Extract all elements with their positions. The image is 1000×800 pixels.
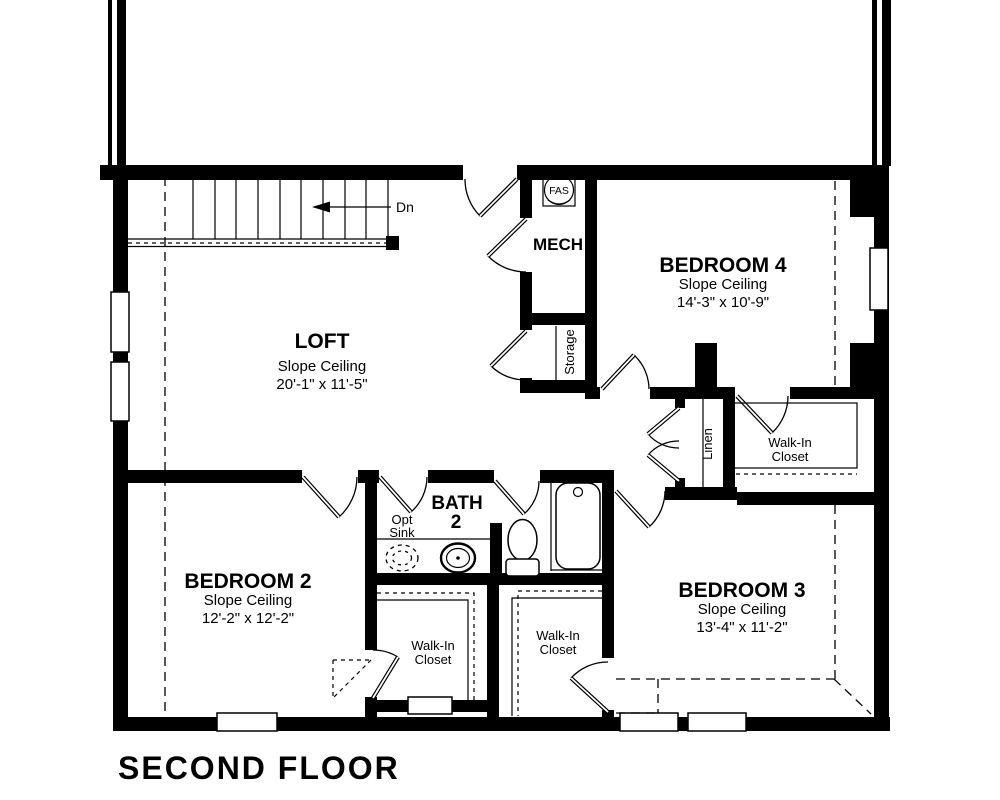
door-bedroom3 [616, 491, 665, 527]
windows [111, 248, 888, 731]
room-closet-bedroom3: Walk-In Closet [536, 628, 580, 657]
door-linen-double [648, 408, 679, 481]
bedroom2-dims: 12'-2" x 12'-2" [202, 610, 294, 627]
room-loft: LOFT Slope Ceiling 20'-1" x 11'-5" [276, 330, 367, 393]
closet-bedroom3-line2: Closet [540, 642, 577, 657]
closet-bedroom4-line2: Closet [772, 449, 809, 464]
room-bath2: BATH 2 Opt Sink [389, 493, 482, 540]
optional-sink [386, 545, 418, 571]
door-walkin-closet-bedroom3 [571, 662, 608, 712]
bedroom4-ceiling: Slope Ceiling [679, 276, 767, 293]
door-bath2 [380, 477, 427, 512]
door-mech [488, 219, 526, 272]
room-storage: Storage [562, 329, 577, 375]
bedroom2-ceiling: Slope Ceiling [204, 592, 292, 609]
door-loft-entry [465, 179, 517, 216]
storage-label: Storage [562, 329, 577, 375]
room-closet-bedroom4: Walk-In Closet [768, 435, 812, 464]
door-storage [491, 331, 526, 380]
closet-bedroom2-line1: Walk-In [411, 638, 455, 653]
bedroom3-ceiling: Slope Ceiling [698, 601, 786, 618]
bath2-name-line1: BATH [431, 493, 482, 514]
room-linen: Linen [700, 428, 715, 460]
door-toilet-compartment [495, 481, 539, 514]
room-bedroom4: BEDROOM 4 Slope Ceiling 14'-3" x 10'-9" [659, 254, 787, 311]
room-closet-bedroom2: Walk-In Closet [411, 638, 455, 667]
bath2-opt-line2: Sink [389, 525, 415, 540]
bath2-name-line2: 2 [451, 512, 462, 533]
mech-label: MECH [533, 235, 583, 254]
toilet [506, 520, 539, 577]
bedroom3-dims: 13'-4" x 11'-2" [696, 619, 787, 636]
door-walkin-closet-bedroom2 [333, 650, 398, 698]
sink [441, 544, 475, 573]
window-bedroom2 [217, 713, 277, 731]
window-bedroom3-2 [688, 713, 746, 731]
loft-dims: 20'-1" x 11'-5" [276, 376, 367, 393]
window-left-1 [111, 292, 129, 352]
closet-bedroom4-line1: Walk-In [768, 435, 812, 450]
loft-ceiling: Slope Ceiling [278, 358, 366, 375]
bathtub [551, 477, 602, 571]
floor-plan: Dn [0, 0, 1000, 800]
closet-bedroom2-line2: Closet [415, 652, 452, 667]
loft-name: LOFT [295, 330, 350, 353]
stair-arrowhead-icon [312, 202, 330, 213]
door-walkin-closet-bedroom4 [737, 396, 788, 433]
window-right-bedroom4 [870, 248, 888, 310]
linen-label: Linen [700, 428, 715, 460]
floor-plan-drawing: Dn [0, 0, 1000, 800]
room-bedroom2: BEDROOM 2 Slope Ceiling 12'-2" x 12'-2" [184, 570, 311, 627]
window-bedroom3-1 [620, 713, 678, 731]
room-bedroom3: BEDROOM 3 Slope Ceiling 13'-4" x 11'-2" [678, 579, 805, 636]
stairs: Dn [128, 177, 414, 250]
fan-label: FAS [549, 185, 569, 197]
closet-bedroom3-line1: Walk-In [536, 628, 580, 643]
room-mech: MECH [533, 235, 583, 254]
bedroom3-name: BEDROOM 3 [678, 579, 805, 602]
door-bedroom2 [303, 477, 357, 517]
bedroom2-name: BEDROOM 2 [184, 570, 311, 593]
window-left-2 [111, 362, 129, 421]
window-closet [408, 697, 452, 714]
stairs-down-label: Dn [396, 199, 414, 215]
bedroom4-name: BEDROOM 4 [659, 254, 787, 277]
door-bedroom4 [602, 355, 649, 389]
page-title: SECOND FLOOR [118, 750, 400, 786]
bedroom4-dims: 14'-3" x 10'-9" [677, 294, 769, 311]
stair-newel-post [386, 236, 399, 250]
